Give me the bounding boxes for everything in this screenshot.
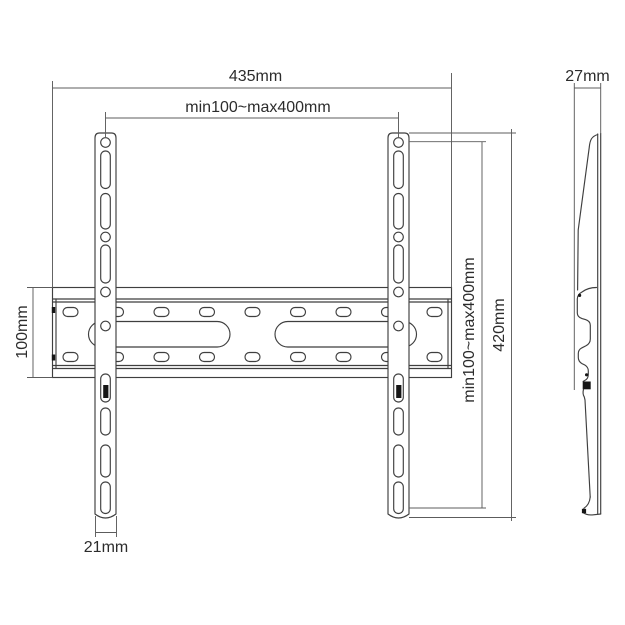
dim-label-hole-pattern-height: min100~max400mm (461, 255, 479, 405)
front-view (52, 133, 452, 518)
side-lower-edge (583, 389, 590, 497)
weld-dot (585, 373, 588, 376)
rail-slot (63, 308, 78, 317)
rail-screw-slots-bottom (63, 353, 442, 362)
dim-label-depth: 27mm (562, 68, 613, 86)
dim-label-arm-height: 420mm (491, 295, 509, 355)
dim-label-arm-width: 21mm (66, 539, 146, 557)
side-view (577, 134, 600, 515)
rail-screw-slots-top (63, 308, 442, 317)
weld-dot (578, 294, 581, 297)
dim-label-rail-height: 100mm (14, 299, 32, 365)
dim-arm-width (96, 516, 117, 537)
technical-drawing-canvas: 435mm min100~max400mm 100mm 21mm min100~… (0, 0, 625, 625)
side-rail-profile (577, 288, 596, 382)
foot-clip-mark (582, 509, 586, 513)
vesa-bracket-right (388, 133, 409, 518)
dim-label-hole-pattern-width: min100~max400mm (112, 99, 404, 117)
rail-hook-tab (52, 307, 55, 313)
side-lock-clip (583, 382, 591, 390)
side-front-edge (578, 135, 598, 291)
rail-hook-tab (52, 355, 55, 361)
bracket-body (95, 133, 116, 518)
lock-screw-mark (103, 385, 108, 398)
dim-label-overall-width: 435mm (56, 68, 455, 86)
wall-mount-drawing (0, 0, 625, 625)
vesa-bracket-left (95, 133, 116, 518)
